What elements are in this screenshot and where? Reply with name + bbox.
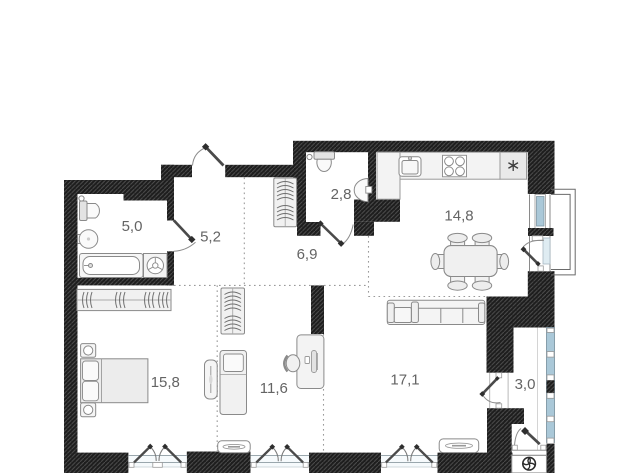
svg-text:15,8: 15,8 — [151, 374, 180, 391]
svg-text:5,0: 5,0 — [122, 218, 143, 235]
svg-text:11,6: 11,6 — [260, 380, 288, 397]
svg-text:2,8: 2,8 — [331, 186, 352, 203]
svg-text:3,0: 3,0 — [515, 376, 536, 393]
svg-text:5,2: 5,2 — [200, 229, 221, 246]
svg-text:14,8: 14,8 — [444, 208, 473, 225]
svg-text:6,9: 6,9 — [297, 246, 318, 263]
svg-text:17,1: 17,1 — [390, 372, 419, 389]
